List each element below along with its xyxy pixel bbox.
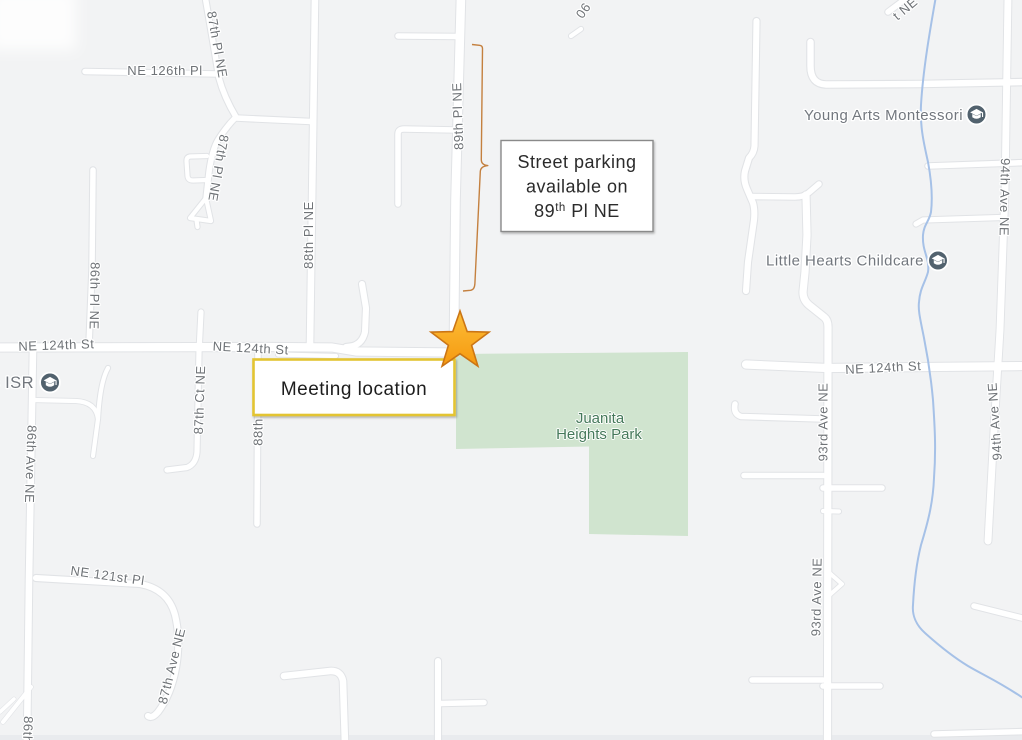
svg-text:86th Ave NE: 86th Ave NE: [22, 425, 40, 504]
svg-text:Young Arts Montessori: Young Arts Montessori: [804, 107, 963, 124]
svg-text:s ISR: s ISR: [0, 374, 34, 392]
svg-text:93rd Ave NE: 93rd Ave NE: [816, 383, 831, 462]
svg-text:Street parking: Street parking: [517, 152, 636, 172]
svg-text:86th Ave NE: 86th Ave NE: [18, 716, 36, 740]
svg-text:93rd Ave NE: 93rd Ave NE: [808, 557, 824, 636]
svg-text:88th Pl NE: 88th Pl NE: [301, 201, 316, 269]
svg-text:Juanita: Juanita: [576, 410, 625, 427]
svg-text:NE 124th St: NE 124th St: [18, 336, 95, 354]
svg-text:89th Pl NE: 89th Pl NE: [449, 82, 466, 150]
svg-text:available on: available on: [526, 177, 628, 197]
svg-text:Meeting location: Meeting location: [281, 379, 427, 400]
svg-text:NE 126th Pl: NE 126th Pl: [127, 63, 202, 78]
svg-text:86th Pl NE: 86th Pl NE: [87, 262, 103, 330]
svg-text:Little Hearts Childcare: Little Hearts Childcare: [766, 253, 924, 270]
svg-text:94th Ave NE: 94th Ave NE: [997, 158, 1013, 236]
svg-text:89th Pl NE: 89th Pl NE: [534, 201, 620, 221]
svg-text:Heights Park: Heights Park: [556, 426, 642, 443]
svg-text:88th: 88th: [251, 418, 266, 446]
svg-text:87th Ct NE: 87th Ct NE: [191, 365, 208, 435]
